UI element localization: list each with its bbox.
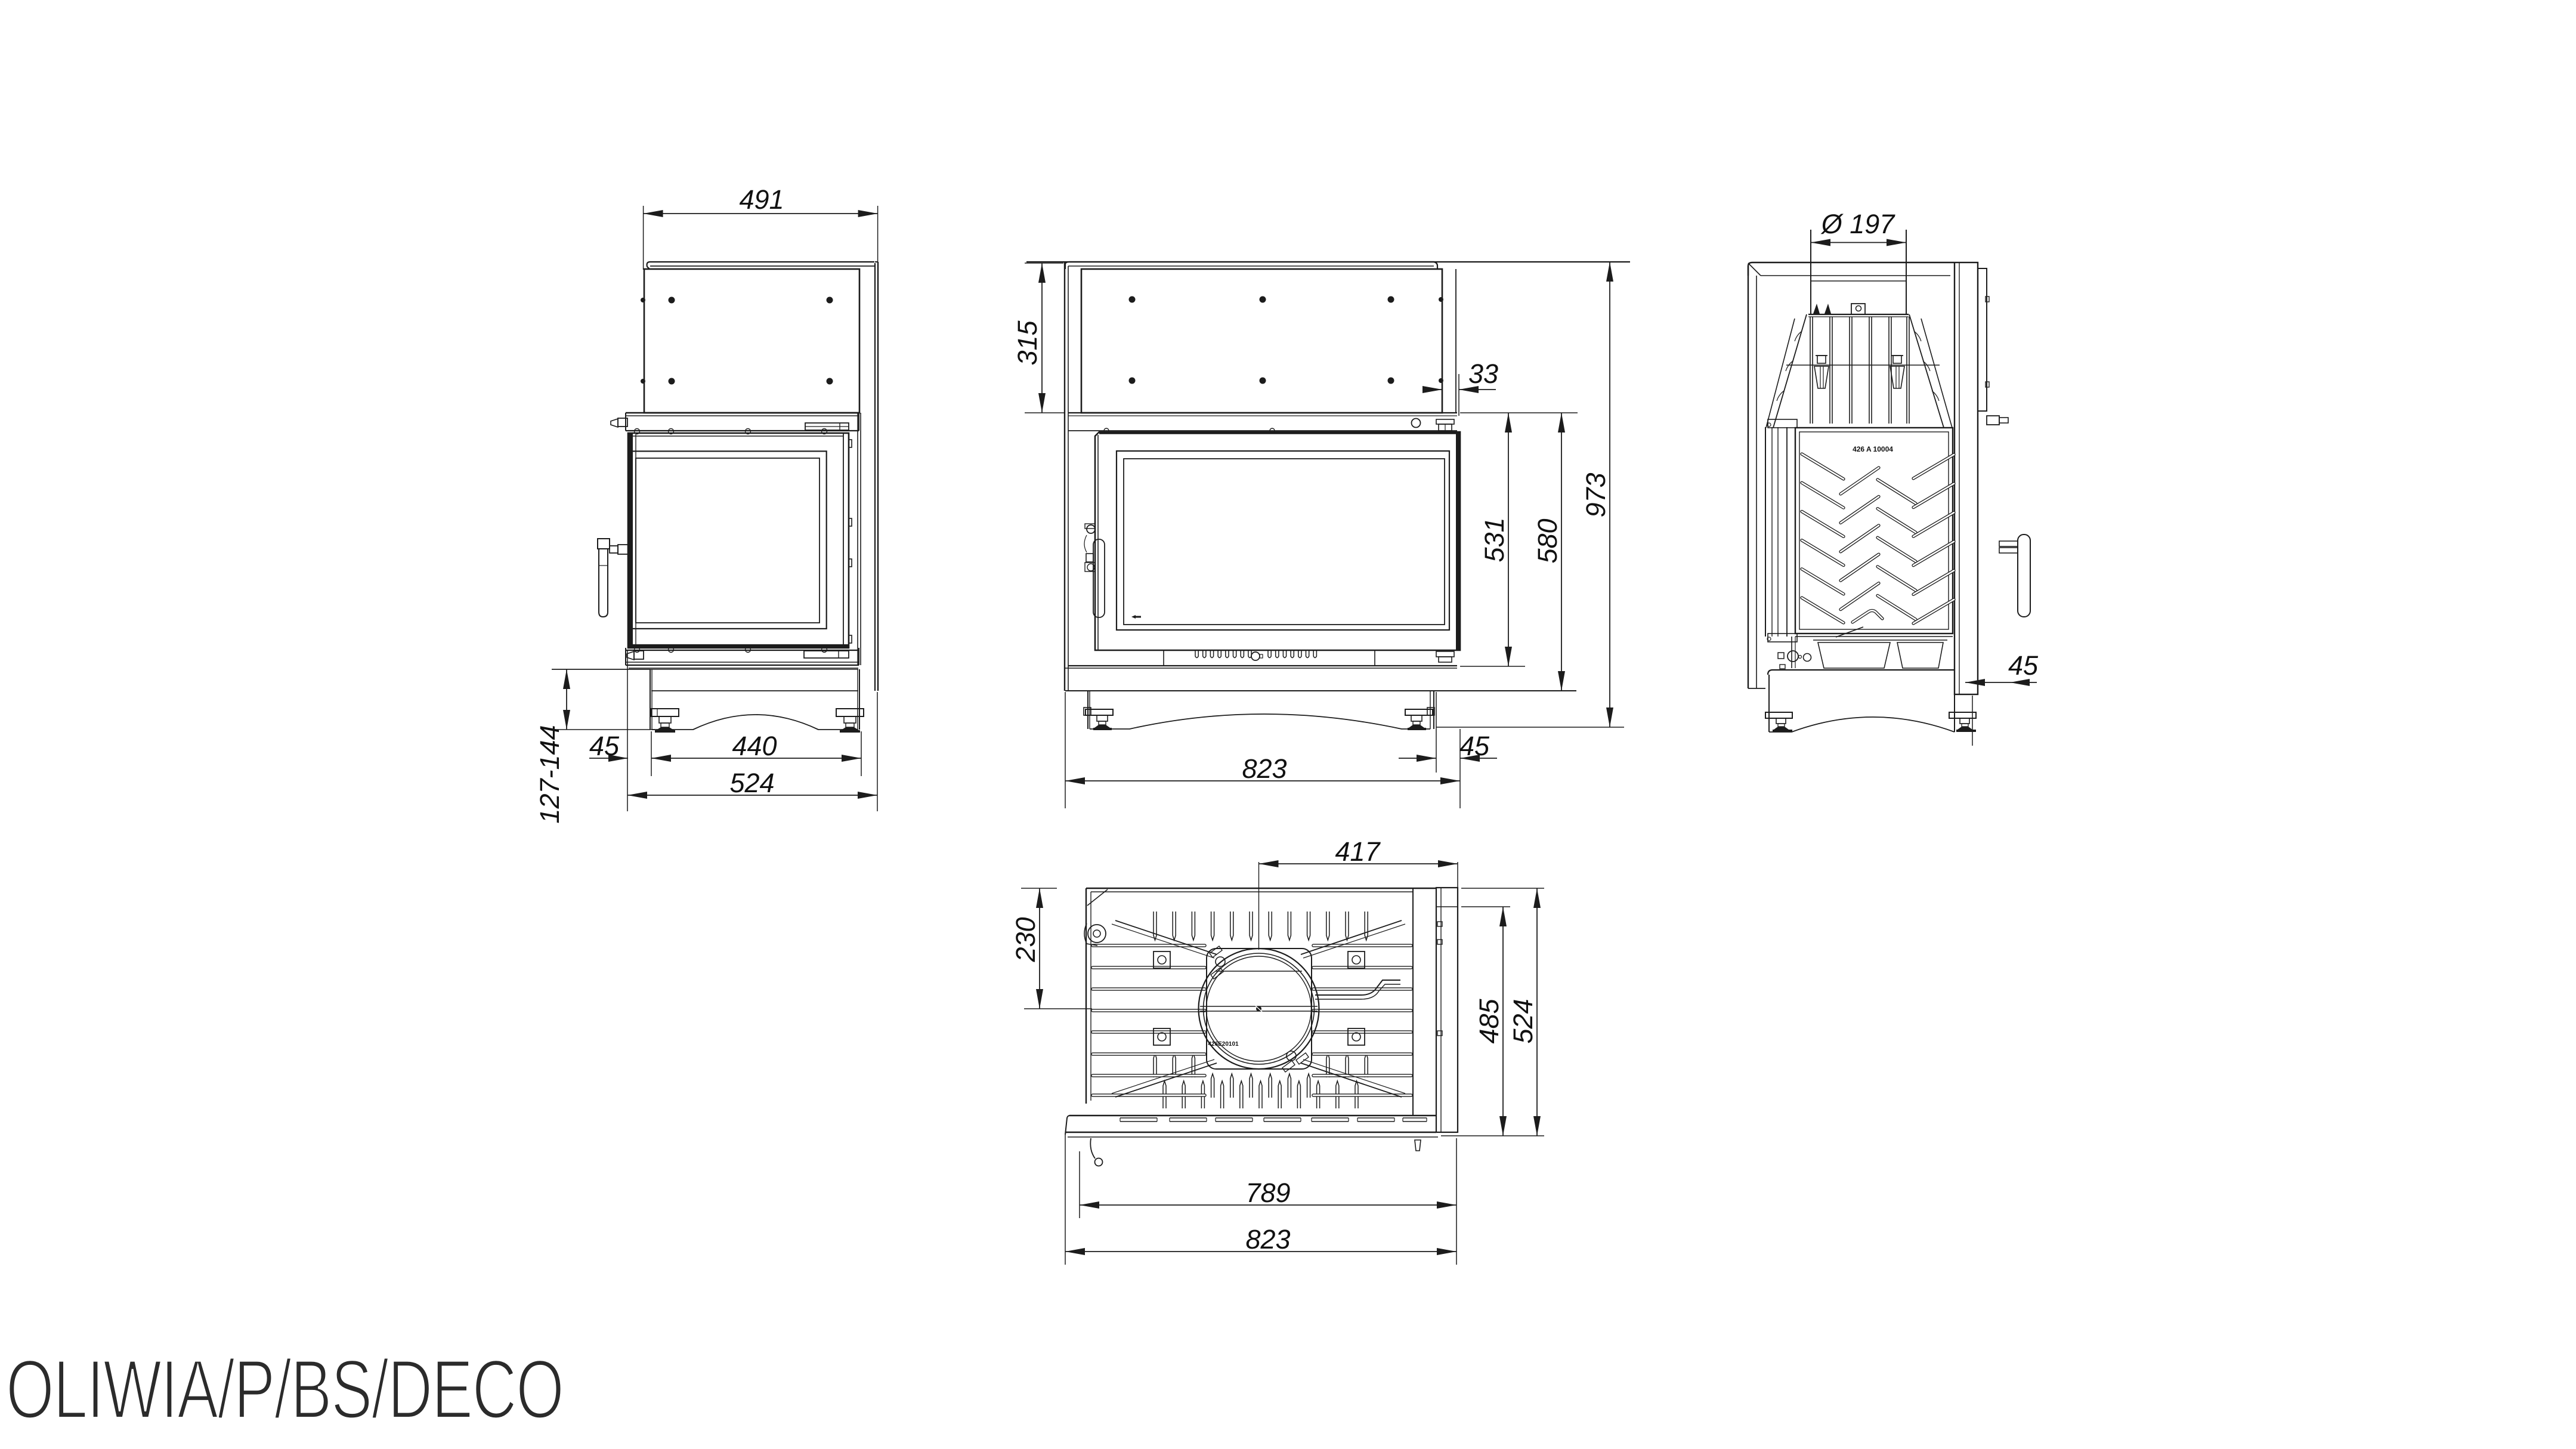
svg-text:426 A 10004: 426 A 10004 [1853,445,1893,453]
svg-text:315: 315 [1012,320,1043,365]
svg-text:33: 33 [1468,359,1498,389]
svg-text:Ø 197: Ø 197 [1820,209,1896,239]
svg-text:491: 491 [739,184,784,215]
svg-text:45: 45 [2008,650,2039,681]
svg-text:417: 417 [1335,836,1381,867]
svg-text:127-144: 127-144 [534,725,565,823]
svg-text:823: 823 [1242,753,1287,784]
svg-text:45: 45 [589,731,620,761]
svg-text:485: 485 [1474,998,1504,1043]
svg-text:45: 45 [1459,731,1490,761]
svg-text:440: 440 [732,731,777,761]
svg-text:531: 531 [1479,517,1510,562]
svg-text:230: 230 [1010,917,1041,962]
svg-text:789: 789 [1245,1178,1290,1208]
svg-text:823: 823 [1245,1224,1290,1255]
svg-text:524: 524 [729,768,774,798]
svg-text:580: 580 [1532,518,1563,563]
svg-text:524: 524 [1508,999,1538,1043]
svg-text:973: 973 [1581,472,1611,517]
svg-text:426E20101: 426E20101 [1208,1041,1239,1048]
